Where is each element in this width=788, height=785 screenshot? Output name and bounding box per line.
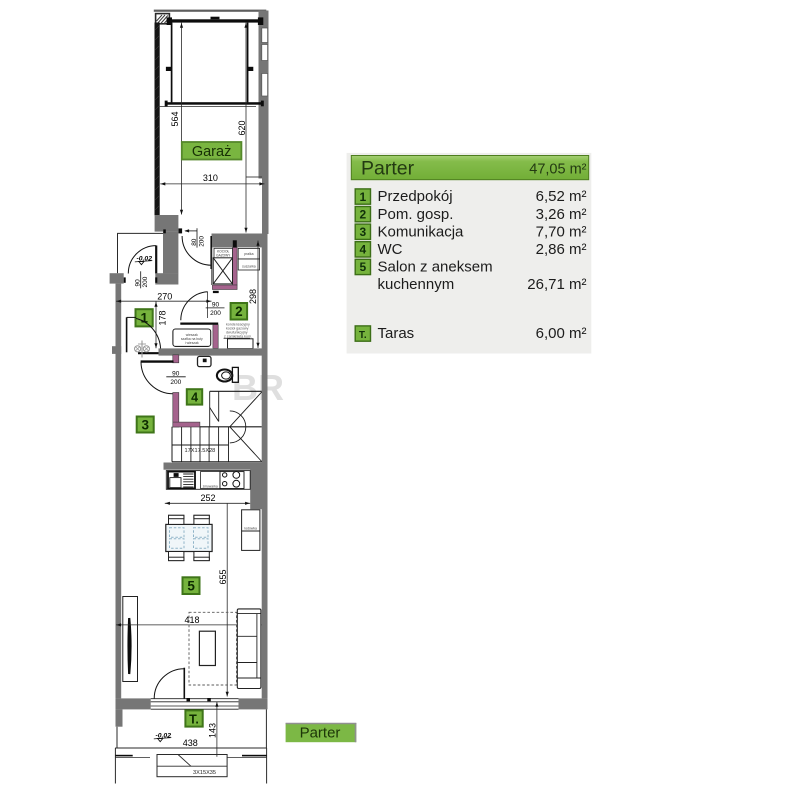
svg-text:80: 80 [191, 238, 198, 246]
svg-text:Garaż: Garaż [192, 144, 232, 160]
svg-text:6,52 m²: 6,52 m² [536, 188, 587, 205]
svg-text:26,71 m²: 26,71 m² [527, 276, 586, 293]
svg-text:2,86 m²: 2,86 m² [536, 241, 587, 258]
svg-text:270: 270 [157, 292, 172, 302]
svg-text:418: 418 [184, 615, 199, 625]
svg-text:z zamkniętą kom.: z zamkniętą kom. [224, 334, 252, 338]
svg-text:7,70 m²: 7,70 m² [536, 223, 587, 240]
svg-text:3: 3 [359, 225, 366, 239]
svg-text:2: 2 [359, 207, 366, 221]
svg-text:Przedpokój: Przedpokój [378, 188, 453, 205]
svg-text:17X17.5X28: 17X17.5X28 [185, 448, 216, 454]
svg-text:298: 298 [248, 289, 258, 304]
svg-text:620: 620 [237, 120, 247, 135]
svg-text:pralka: pralka [244, 252, 253, 256]
svg-text:200: 200 [210, 310, 221, 317]
svg-text:564: 564 [170, 111, 180, 126]
svg-text:GAZOWY: GAZOWY [216, 253, 231, 257]
svg-text:90: 90 [212, 302, 220, 309]
svg-text:47,05 m²: 47,05 m² [529, 162, 586, 178]
svg-text:Parter: Parter [361, 158, 415, 180]
svg-text:Parter: Parter [300, 725, 341, 742]
svg-text:310: 310 [203, 173, 218, 183]
svg-text:Komunikacja: Komunikacja [378, 223, 465, 240]
svg-text:90: 90 [135, 279, 142, 287]
svg-text:i wieszak: i wieszak [185, 341, 199, 345]
svg-text:143: 143 [208, 723, 218, 738]
svg-text:lodówka: lodówka [244, 526, 257, 530]
svg-text:3X15X35: 3X15X35 [193, 770, 216, 776]
svg-text:Salon z aneksem: Salon z aneksem [378, 259, 493, 276]
svg-text:200: 200 [198, 236, 205, 247]
svg-text:4: 4 [191, 391, 198, 405]
svg-text:Pom. gosp.: Pom. gosp. [378, 206, 454, 223]
svg-text:5: 5 [359, 260, 366, 274]
svg-text:438: 438 [183, 738, 198, 748]
svg-text:2: 2 [235, 304, 243, 319]
svg-text:252: 252 [200, 493, 215, 503]
svg-text:BR: BR [232, 367, 284, 408]
svg-text:178: 178 [158, 310, 168, 325]
svg-text:200: 200 [170, 379, 181, 386]
svg-text:WC: WC [378, 241, 403, 258]
svg-text:6,00 m²: 6,00 m² [536, 325, 587, 342]
svg-text:suszarka: suszarka [242, 265, 256, 269]
svg-text:T.: T. [189, 712, 199, 726]
svg-text:3,26 m²: 3,26 m² [536, 206, 587, 223]
svg-text:5: 5 [187, 579, 195, 594]
svg-text:Taras: Taras [378, 325, 415, 342]
svg-text:T.: T. [359, 330, 367, 341]
svg-text:zmywarka: zmywarka [203, 485, 218, 489]
svg-text:1: 1 [359, 190, 366, 204]
svg-text:655: 655 [218, 569, 228, 584]
svg-text:4: 4 [359, 243, 366, 257]
svg-text:kuchennym: kuchennym [378, 276, 455, 293]
svg-text:90: 90 [172, 370, 180, 377]
svg-text:3: 3 [142, 417, 150, 432]
svg-text:200: 200 [142, 276, 149, 287]
